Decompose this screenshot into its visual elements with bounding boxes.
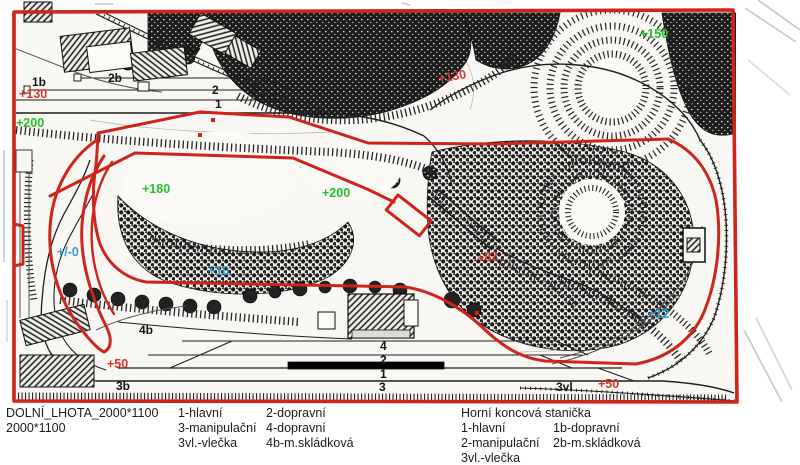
track-label-bottom-2: 2 — [380, 353, 387, 367]
map-content — [14, 10, 738, 403]
elevation-label-green-0: +200 — [16, 116, 44, 130]
legend-item: 4b-m.skládková — [266, 436, 354, 451]
elevation-label-red-0: +130 — [19, 87, 47, 101]
track-label-top-1: 1 — [215, 97, 222, 111]
platform — [288, 362, 444, 369]
legend-item: 1-hlavní — [178, 406, 266, 421]
legend-heading: Horní koncová stanička — [461, 406, 641, 421]
elevation-label-red-4: +50 — [598, 377, 619, 391]
elevation-label-blue-2: +12 — [648, 307, 669, 321]
scanned-track-plan: +200 +180 +200 +150 +/-0 +10 +12 +130 +1… — [0, 0, 800, 465]
elevation-label-blue-0: +/-0 — [57, 245, 79, 259]
track-label-bottom-4b: 4b — [139, 323, 153, 337]
track-label-bottom-3: 3 — [379, 380, 386, 394]
building-bottomleft-2 — [20, 355, 94, 387]
elevation-label-green-3: +150 — [640, 27, 668, 41]
legend-item: 2-dopravní — [266, 406, 354, 421]
legend-item: 3vl.-vlečka — [178, 436, 266, 451]
legend-item: 2-manipulační — [461, 436, 553, 451]
elevation-label-green-2: +200 — [322, 186, 350, 200]
elevation-label-red-3: +50 — [107, 357, 128, 371]
track-label-top-2: 2 — [212, 83, 219, 97]
legend-item: 4-dopravní — [266, 421, 354, 436]
legend-item: 2b-m.skládková — [553, 436, 641, 451]
legend-horni-stanicka: Horní koncová stanička 1-hlavní 1b-dopra… — [461, 406, 641, 465]
loading-ramp — [352, 330, 410, 338]
underpass-bridge — [16, 150, 32, 172]
legend-item: 1-hlavní — [461, 421, 553, 436]
elevation-label-red-2: +82 — [476, 249, 499, 266]
track-label-bottom-3b: 3b — [116, 379, 130, 393]
track-label-top-1b: 1b — [32, 75, 46, 89]
elevation-label-blue-1: +10 — [208, 264, 229, 278]
plan-dimensions: 2000*1100 — [6, 421, 158, 436]
legend-item: 3-manipulační — [178, 421, 266, 436]
legend-item: 1b-dopravní — [553, 421, 641, 436]
track-label-bottom-3vl: 3vl — [556, 380, 573, 394]
track-label-bottom-4: 4 — [380, 339, 387, 353]
plan-title: DOLNÍ_LHOTA_2000*1100 — [6, 406, 158, 421]
elevation-label-green-1: +180 — [142, 182, 170, 196]
track-label-bottom-1: 1 — [380, 367, 387, 381]
title-block: DOLNÍ_LHOTA_2000*1100 2000*1100 — [6, 406, 158, 436]
legend-dolni-lhota: 1-hlavní 2-dopravní 3-manipulační 4-dopr… — [178, 406, 354, 451]
map-svg: +200 +180 +200 +150 +/-0 +10 +12 +130 +1… — [0, 0, 800, 465]
track-label-top-2b: 2b — [108, 71, 122, 85]
legend-item: 3vl.-vlečka — [461, 451, 553, 465]
legend-item — [553, 451, 641, 465]
